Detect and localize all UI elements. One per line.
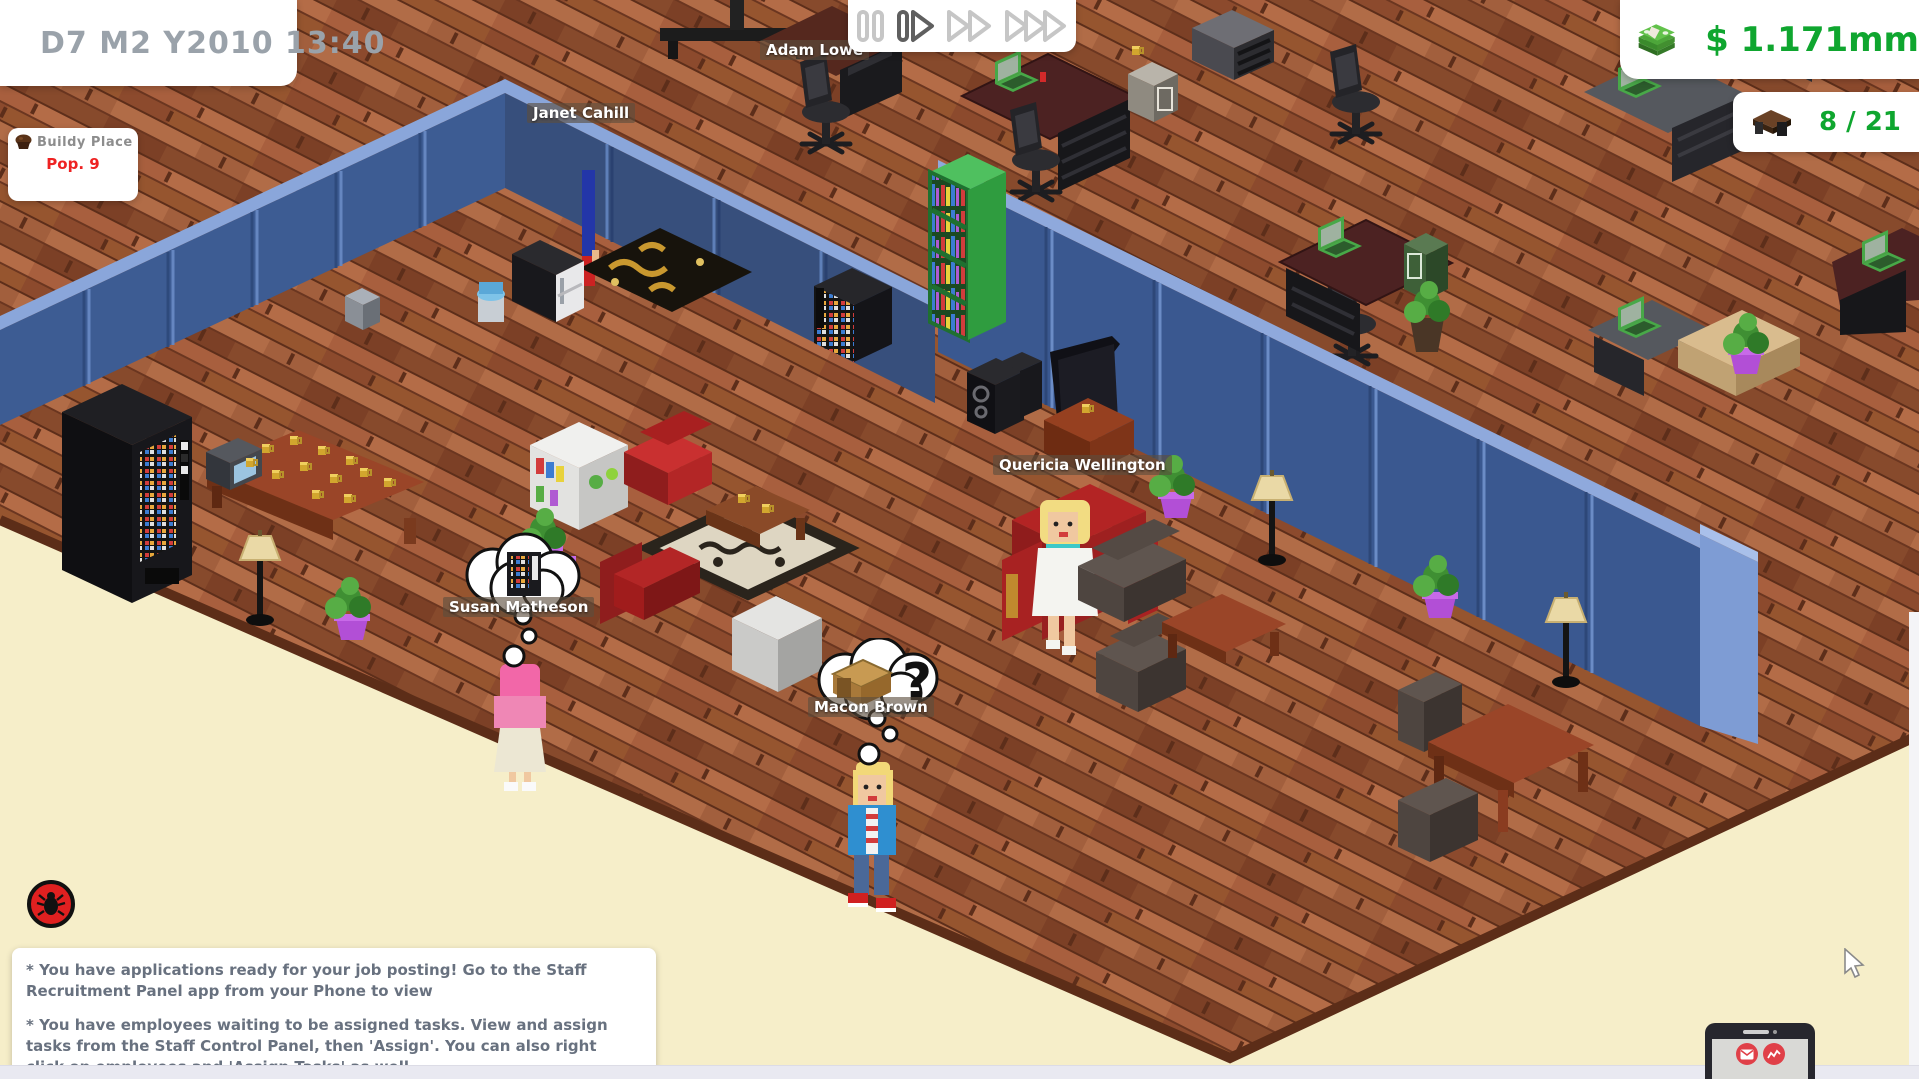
phone-button[interactable] [1705,1023,1815,1079]
notification-panel[interactable]: * You have applications ready for your j… [12,948,656,1079]
water-cooler[interactable] [477,282,505,322]
fast-forward-button[interactable] [946,8,994,44]
place-badge[interactable]: Buildy Place Pop. 9 [8,128,138,201]
bug-icon [36,889,66,919]
pause-icon [856,9,886,43]
character-susan-matheson[interactable] [494,664,546,791]
bookshelf-green[interactable] [930,154,1006,340]
nametag-susan: Susan Matheson [443,597,594,617]
pause-button[interactable] [856,8,886,44]
mouse-cursor [1843,948,1867,980]
bug-report-button[interactable] [27,880,75,928]
population-count: Pop. 9 [8,155,138,173]
game-date: D7 M2 Y2010 13:40 [40,26,386,61]
date-panel[interactable]: 9 D7 M2 Y2010 13:40 [0,0,297,86]
mail-app-icon[interactable] [1736,1043,1758,1065]
right-edge-strip [1909,612,1919,1065]
vending-machine-left[interactable] [62,384,192,603]
bottom-bar [0,1065,1919,1079]
vending-machine-icon [507,552,541,596]
desk-counter-panel[interactable]: 8 / 21 [1733,92,1919,152]
money-panel[interactable]: $ 1.171mm [1620,0,1919,79]
phone-speaker [1743,1030,1769,1034]
fast-forward-icon [946,9,994,43]
game-viewport: ? Adam Lowe Janet Cahill Quericia Wellin… [0,0,1919,1079]
fastest-forward-icon [1004,9,1068,43]
money-amount: $ 1.171mm [1705,20,1919,60]
nametag-quericia: Quericia Wellington [993,455,1172,475]
fastest-forward-button[interactable] [1004,8,1068,44]
nametag-janet: Janet Cahill [527,103,635,123]
phone-camera-dot [1773,1030,1777,1034]
vending-machine-right[interactable] [814,268,892,362]
notification-message: * You have applications ready for your j… [26,960,638,1001]
place-name: Buildy Place [37,135,133,150]
desk-count-icon [1749,105,1793,139]
speed-controls[interactable] [848,0,1076,52]
nametag-macon: Macon Brown [808,697,934,717]
muffin-icon [15,134,32,150]
play-button[interactable] [896,8,936,44]
stats-app-icon[interactable] [1763,1043,1785,1065]
play-icon [896,9,936,43]
desk-count: 8 / 21 [1819,107,1901,137]
cash-icon [1634,11,1677,69]
office-scene[interactable] [0,0,1919,1079]
